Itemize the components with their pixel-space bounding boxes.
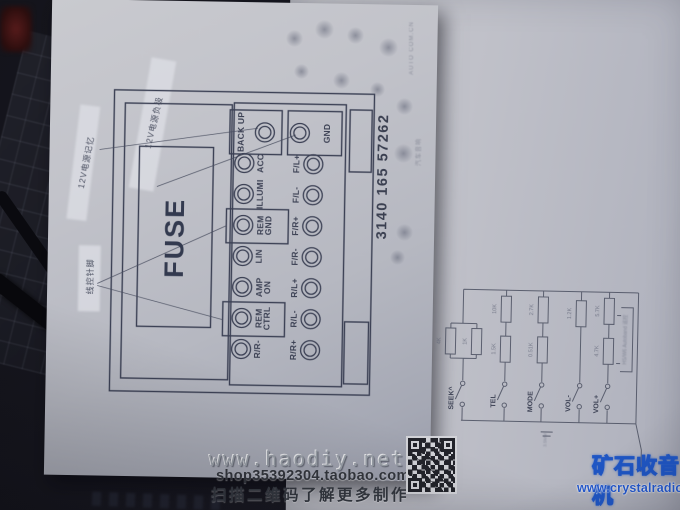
shadow-blob — [370, 82, 385, 97]
resistor-value: 4.7K — [594, 345, 600, 357]
qr-finder — [441, 438, 455, 452]
remote-schematic: SEEK^ TEL MODE VOL- VOL+ 4K 1K 10K 1.5K … — [428, 260, 662, 480]
pin-label: F/L+ — [292, 155, 300, 174]
button-label: VOL+ — [593, 395, 600, 414]
plug-note: 3.5MM — [542, 433, 547, 447]
pin-label: ACC — [256, 154, 264, 173]
pin-label: R/R+ — [289, 340, 297, 361]
watermark-taobao-shop: shop35392304.taobao.com — [216, 468, 410, 484]
shadow-blob — [379, 38, 398, 57]
radio-rear-diagram — [95, 80, 401, 415]
pin-label: R/R- — [253, 340, 261, 358]
pin-label: GND — [323, 124, 331, 144]
button-label: TEL — [490, 394, 497, 408]
pin-label: F/R- — [291, 248, 299, 265]
resistor-value: 0.51K — [528, 342, 534, 357]
button-label: MODE — [527, 391, 534, 412]
shadow-blob — [315, 20, 334, 39]
part-number: 3140 165 57262 — [374, 113, 392, 239]
button-label: SEEK^ — [447, 386, 455, 409]
pin-label: REM GND — [256, 209, 273, 241]
resistor-value: 1.2K — [567, 307, 573, 319]
resistor-value: 2.7K — [529, 304, 535, 316]
shadow-blob — [396, 98, 413, 115]
shadow-blob — [294, 64, 309, 79]
blurred-text-smudge — [92, 492, 222, 510]
pin-label: REM CTRL — [254, 302, 271, 334]
watermark-crystalradio-name: 矿石收音机 — [592, 450, 680, 510]
button-label: VOL- — [565, 394, 572, 412]
fuse-label: FUSE — [159, 198, 191, 279]
resistor-value: 1.5K — [491, 343, 497, 355]
qr-finder — [408, 438, 422, 452]
side-note: HS/W6 Autoband 遥控 — [621, 315, 629, 365]
shadow-blob — [347, 27, 364, 44]
shadow-blob — [286, 30, 303, 47]
edge-text: 汽车音响 — [414, 138, 423, 166]
pin-label: AMP ON — [255, 271, 272, 303]
diagram-paper: FUSE 3140 165 57262 BACK UP ACC ILLUMI R… — [44, 0, 438, 481]
resistor-value: 10K — [492, 304, 498, 314]
watermark-qr-caption: 扫描二维码了解更多制作 — [211, 483, 409, 505]
pin-label: ILLUMI — [256, 179, 265, 209]
shadow-blob — [333, 72, 350, 89]
qr-finder — [408, 478, 422, 492]
resistor-value: 1K — [463, 338, 469, 345]
photo-scene: SEEK^ TEL MODE VOL- VOL+ 4K 1K 10K 1.5K … — [0, 0, 680, 510]
edge-text: AUTO COM.CN — [409, 21, 415, 75]
pin-label: R/L- — [289, 310, 297, 327]
pin-label: F/L- — [292, 187, 300, 204]
resistor-value: 5.7K — [595, 305, 601, 317]
red-object — [0, 6, 32, 52]
shadow-blob — [390, 250, 405, 265]
watermark-crystalradio-url: www.crystalradio.cn — [577, 481, 680, 495]
qr-code — [406, 436, 457, 494]
pin-label: R/L+ — [290, 278, 298, 298]
shadow-blob — [396, 224, 413, 241]
pin-label: LIN — [255, 249, 263, 263]
callout-wire-control: 线控针脚 — [85, 258, 97, 294]
pin-label: F/R+ — [291, 216, 299, 236]
shadow-blob — [394, 144, 413, 163]
pin-label: BACK UP — [237, 112, 246, 152]
resistor-value: 4K — [437, 337, 443, 344]
